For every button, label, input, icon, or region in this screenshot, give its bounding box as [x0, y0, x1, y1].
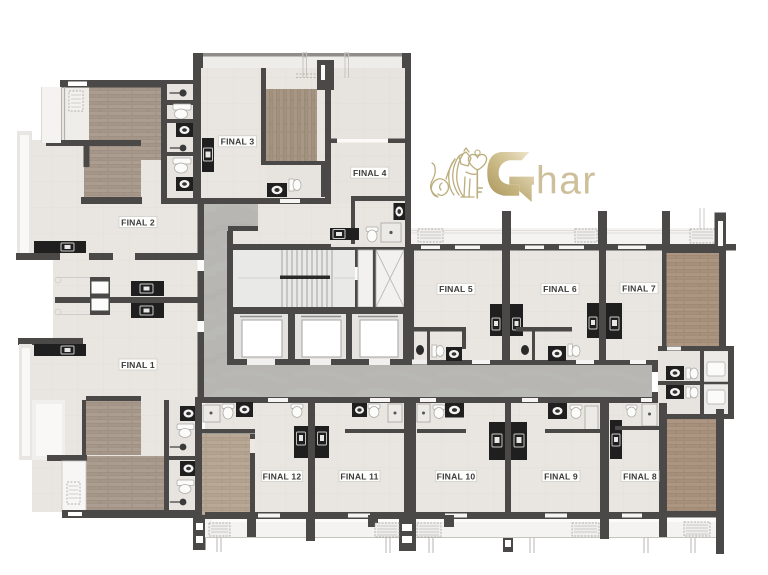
svg-text:FINAL 4: FINAL 4 [353, 168, 387, 178]
svg-text:FINAL 9: FINAL 9 [544, 471, 578, 481]
svg-text:FINAL 1: FINAL 1 [121, 360, 155, 370]
svg-text:FINAL 6: FINAL 6 [543, 284, 577, 294]
svg-text:FINAL 8: FINAL 8 [623, 471, 657, 481]
svg-text:FINAL 2: FINAL 2 [121, 217, 155, 227]
svg-text:FINAL 10: FINAL 10 [437, 471, 476, 481]
svg-text:FINAL 12: FINAL 12 [263, 471, 302, 481]
svg-text:har: har [536, 160, 597, 203]
svg-text:FINAL 11: FINAL 11 [340, 471, 378, 481]
svg-text:FINAL 7: FINAL 7 [622, 283, 656, 293]
svg-text:FINAL 3: FINAL 3 [221, 137, 255, 147]
svg-text:FINAL 5: FINAL 5 [439, 284, 473, 294]
